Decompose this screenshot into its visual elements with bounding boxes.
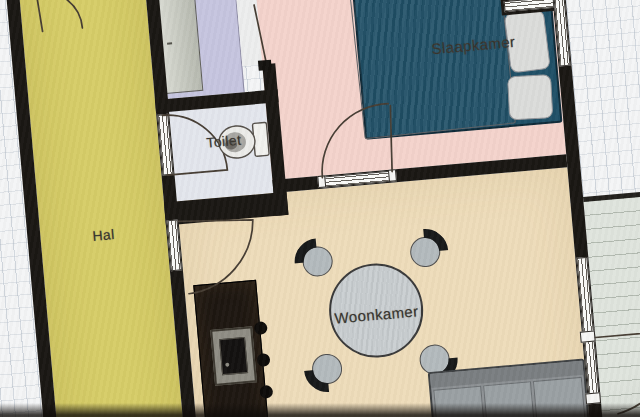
room-label-toilet: Toilet	[206, 132, 242, 151]
storage-open-door	[254, 4, 266, 62]
floorplan-canvas: Hal Toilet Slaapkamer Woonkamer	[0, 0, 640, 417]
woonkamer-door-swing	[179, 215, 259, 294]
room-label-hal: Hal	[92, 226, 116, 244]
plan-linework	[0, 0, 640, 417]
balcony-door-swing	[595, 331, 640, 416]
slaapkamer-door-swing	[316, 103, 396, 177]
storage-door-stop	[258, 60, 272, 71]
front-door-swing	[36, 0, 82, 32]
floorplan-photo: Hal Toilet Slaapkamer Woonkamer	[0, 0, 640, 417]
